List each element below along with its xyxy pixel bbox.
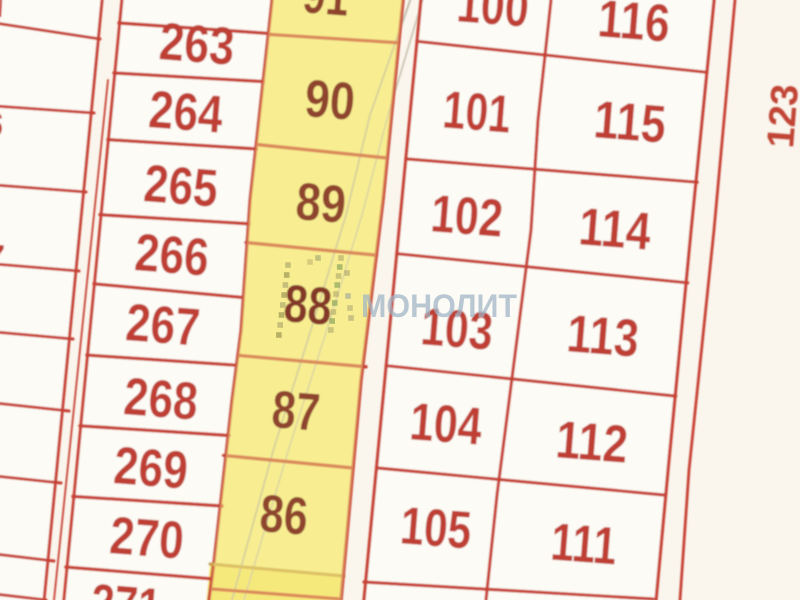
svg-text:МОНОЛИТ: МОНОЛИТ — [361, 288, 517, 324]
